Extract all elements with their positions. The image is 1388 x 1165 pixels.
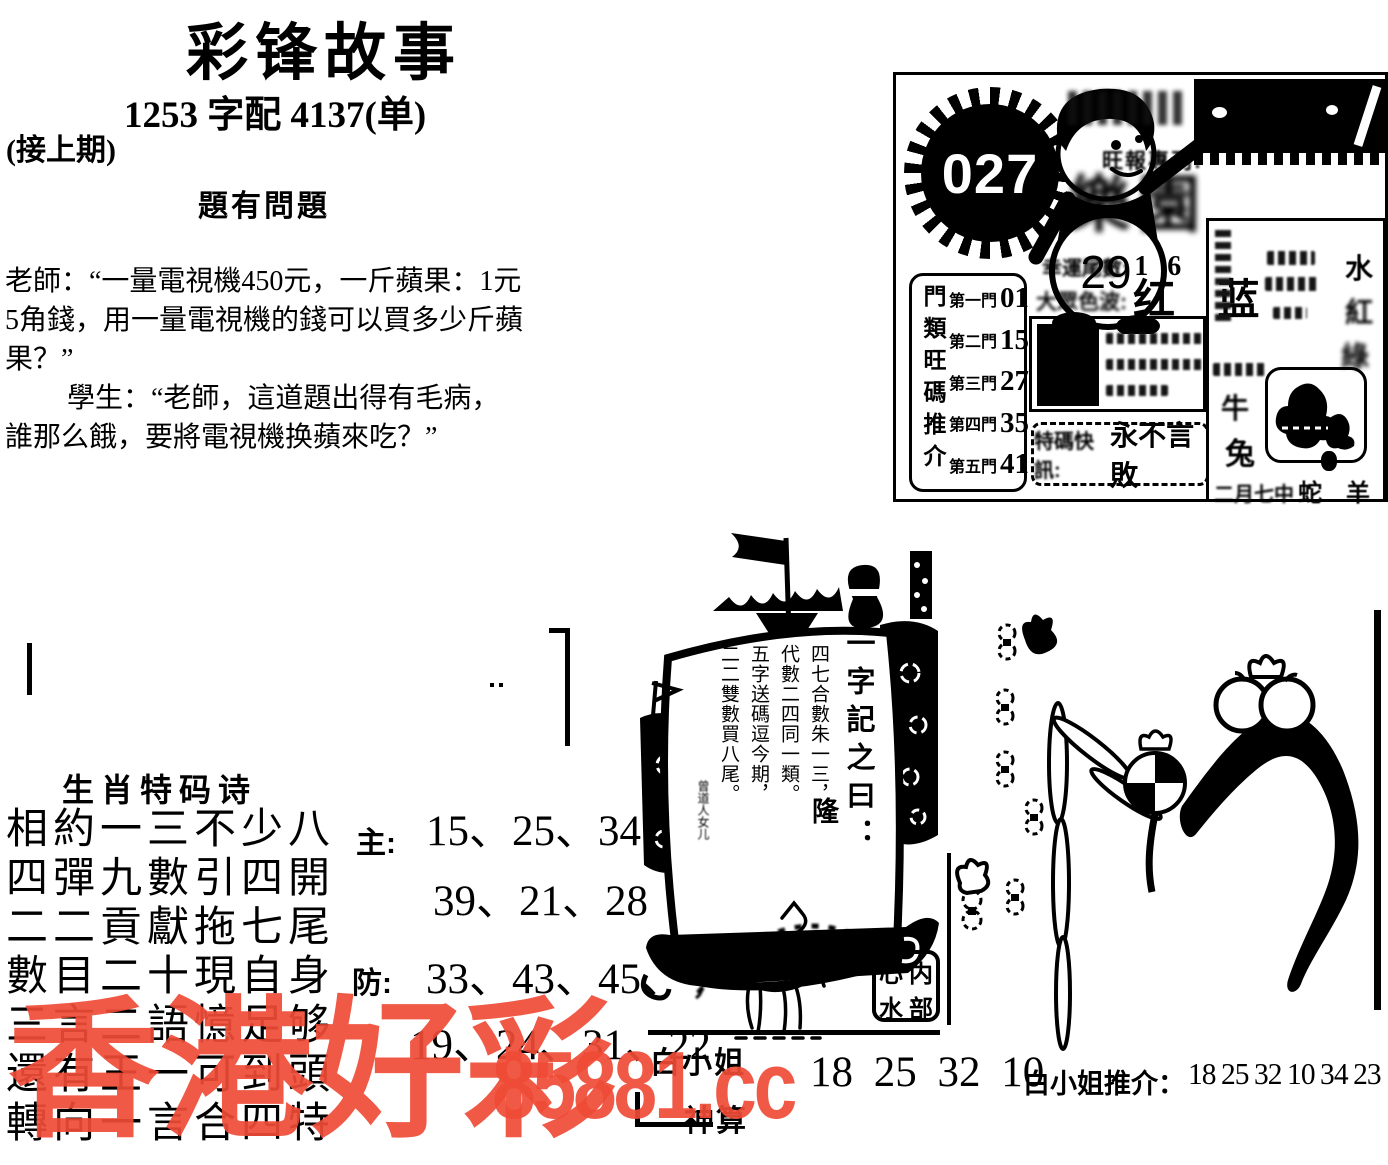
color-wave-label: 大眾色波:	[1036, 286, 1127, 316]
column-label: 旺報專刊:	[1102, 145, 1203, 175]
illegible-text-line	[1213, 363, 1265, 376]
story-line: 誰那么餓，要將電視機换蘋來吃？”	[5, 418, 570, 457]
month-zodiac-line: 二月七中 蛇 羊	[1214, 473, 1379, 508]
zodiac-side-panel: 水 紅 綠 牛 兔 二月七中 蛇 羊	[1206, 218, 1386, 502]
story-heading: 題有問題	[198, 190, 330, 223]
horse-illustration	[720, 890, 835, 1045]
illegible-text-line	[1106, 333, 1202, 344]
door-row: 第二門 15	[949, 324, 1029, 357]
decorative-kite-illustration	[950, 598, 1388, 1063]
illegible-text-line	[1273, 307, 1307, 319]
brand-name: 白小姐	[650, 1038, 746, 1082]
story-line: 老師：“一量電視機450元，一斤蘋果：1元	[5, 262, 570, 301]
illegible-text-line	[1106, 359, 1202, 370]
banner-gap	[1212, 107, 1227, 118]
ink-blot	[1321, 451, 1337, 471]
animal-silhouettes	[1268, 370, 1363, 459]
black-square-block	[1037, 324, 1099, 406]
recommend-label: 白小姐推介：	[1023, 1062, 1185, 1101]
door-label: 第五門	[949, 453, 997, 477]
story-text: 老師：“一量電視機450元，一斤蘋果：1元 5角錢，用一量電視機的錢可以買多少斤…	[5, 262, 570, 457]
poem-line: 還有王一可到頭	[6, 1051, 335, 1100]
main-pick-numbers: 39、21、28	[433, 866, 648, 928]
door-recommendation-box: 門類旺碼推介 第一門 01 第二門 15 第三門 27 第四門 35	[909, 273, 1027, 492]
special-alert-value: 永不言敗	[1110, 414, 1206, 494]
guard-pick-label: 防:	[352, 958, 392, 1002]
stamp-char: 水	[879, 989, 903, 1024]
illegible-vertical-text	[1215, 229, 1231, 321]
guard-pick-numbers: 33、43、45、	[426, 944, 684, 1006]
brand-graphic-characters: 樂園	[1068, 175, 1208, 237]
corner-bracket-mark	[549, 628, 570, 633]
door-row: 第五門 41	[949, 448, 1029, 481]
main-pick-label: 主:	[356, 818, 396, 862]
zodiac-char: 兔	[1225, 429, 1255, 473]
stray-dots	[490, 683, 506, 687]
lucky-tail-label: 幸運尾數:	[1042, 258, 1129, 280]
door-rows: 第一門 01 第二門 15 第三門 27 第四門 35 第五門 41	[949, 276, 1033, 489]
stamp-char: 部	[909, 989, 933, 1024]
special-code-alert: 特碼快訊: 永不言敗	[1031, 422, 1209, 486]
inner-tip-stamp: 心 内 水 部	[872, 950, 940, 1022]
element-char: 水	[1345, 247, 1373, 287]
page-title: 彩锋故事	[186, 20, 462, 88]
door-row: 第一門 01	[949, 282, 1029, 315]
stamp-char: 心	[879, 954, 903, 989]
special-alert-label: 特碼快訊:	[1034, 425, 1108, 483]
illegible-text-line	[1106, 385, 1168, 396]
big-recommend-numbers: 18 25 32 10	[810, 1048, 1044, 1097]
poem-line: 二二貢獻拖七尾	[6, 904, 335, 953]
door-value: 35	[1000, 407, 1029, 440]
door-value: 41	[1000, 448, 1029, 481]
zodiac-poem: 相約一三不少八 四彈九數引四開 二二貢獻拖七尾 數目二十現自身 三言二語憶足够 …	[6, 806, 335, 1149]
poem-line: 四彈九數引四開	[6, 855, 335, 904]
illegible-text-line	[1265, 277, 1317, 291]
lottery-tip-sheet: 彩锋故事 1253 字配 4137(单) (接上期) 題有問題 老師：“一量電視…	[0, 0, 1388, 1165]
door-box-vertical-label: 門類旺碼推介	[912, 276, 949, 489]
main-pick-numbers: 15、25、34	[426, 796, 641, 858]
door-label: 第一門	[949, 287, 997, 311]
illegible-text-line	[1267, 251, 1315, 265]
poem-heading: 生肖特码诗	[62, 765, 257, 811]
story-line: 果？”	[5, 340, 570, 379]
door-label: 第四門	[949, 411, 997, 435]
issue-info-box: 027 29 旺報專刊: 樂園 幸運尾數: 1 6 大眾色波: 红	[893, 72, 1388, 502]
stamp-char: 内	[909, 954, 933, 989]
door-value: 01	[1000, 282, 1029, 315]
animal-silhouette-box	[1265, 367, 1367, 463]
corner-bracket-mark	[565, 628, 570, 746]
illegible-smudge	[1068, 91, 1186, 125]
masthead-black-banner	[1194, 79, 1386, 153]
poem-line: 轉向一言合四特	[6, 1100, 335, 1149]
continuation-note: (接上期)	[6, 134, 116, 167]
poem-line: 三言二語憶足够	[6, 1002, 335, 1051]
stray-mark	[27, 643, 32, 695]
banner-gap	[1326, 105, 1338, 115]
poem-line: 數目二十現自身	[6, 953, 335, 1002]
poem-line: 相約一三不少八	[6, 806, 335, 855]
month-note: 二月七中	[1214, 484, 1294, 506]
zodiac-char: 牛	[1221, 387, 1249, 427]
corner-bracket-mark	[635, 1092, 640, 1125]
element-char: 紅	[1345, 291, 1373, 331]
door-label: 第二門	[949, 328, 997, 352]
pairing-line: 1253 字配 4137(单)	[124, 96, 426, 137]
door-value: 27	[1000, 365, 1029, 398]
door-row: 第四門 35	[949, 407, 1029, 440]
banner-slash	[1354, 85, 1382, 147]
zodiac-pair: 蛇 羊	[1298, 481, 1379, 507]
story-line: 學生：“老師，這道題出得有毛病，	[5, 379, 570, 418]
recommend-numbers: 18 25 32 10 34 23	[1188, 1056, 1381, 1092]
door-value: 15	[1000, 324, 1029, 357]
door-label: 第三門	[949, 370, 997, 394]
brand-name-secondary: 神算	[684, 1096, 748, 1140]
notice-box	[1029, 316, 1206, 412]
motto-character: 隆	[812, 790, 839, 829]
story-line: 5角錢，用一量電視機的錢可以買多少斤蘋	[5, 301, 570, 340]
door-row: 第三門 27	[949, 365, 1029, 398]
